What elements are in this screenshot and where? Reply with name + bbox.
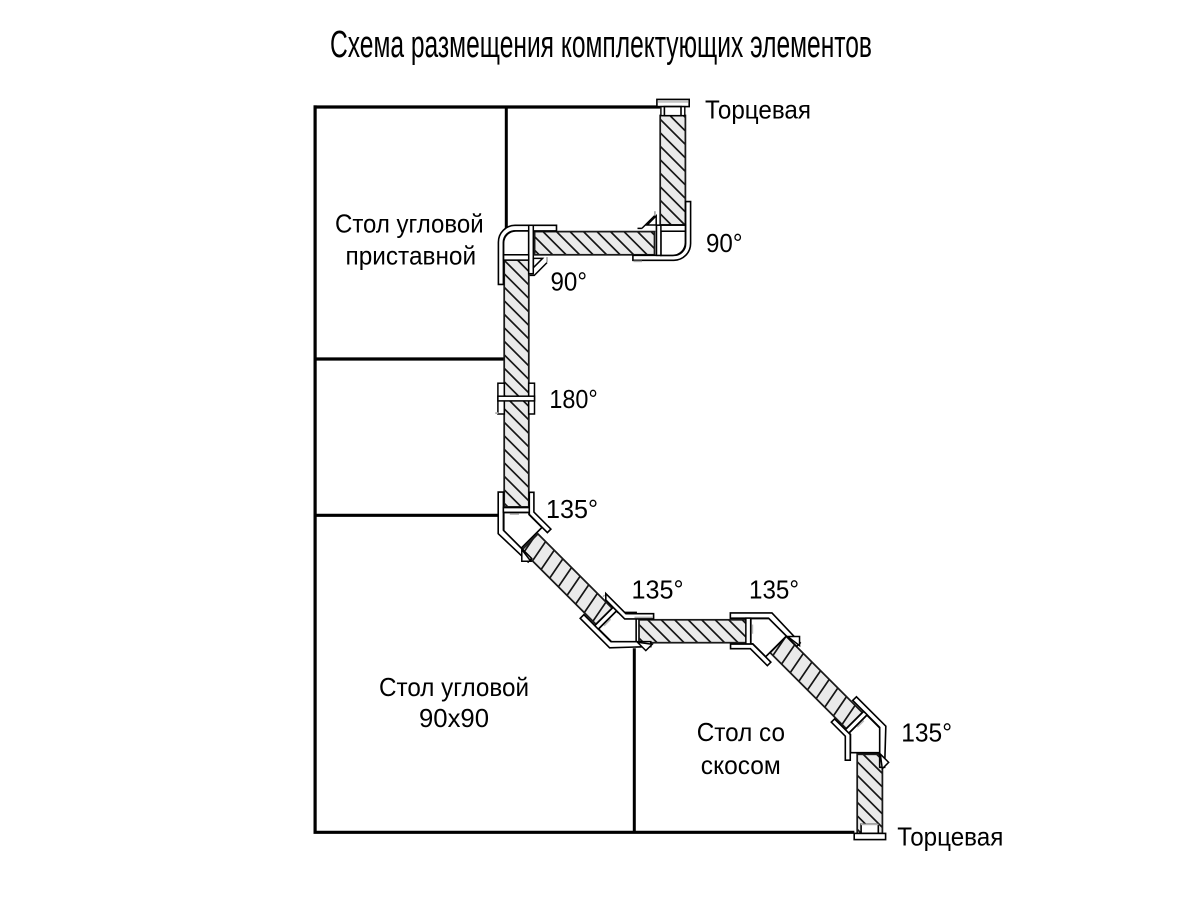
svg-text:90х90: 90х90 xyxy=(419,703,489,733)
svg-text:Стол со: Стол со xyxy=(697,717,785,747)
svg-text:135°: 135° xyxy=(901,717,952,747)
svg-text:скосом: скосом xyxy=(701,750,781,780)
svg-text:135°: 135° xyxy=(632,574,684,604)
svg-text:Стол угловой: Стол угловой xyxy=(335,209,484,239)
svg-text:Торцевая: Торцевая xyxy=(705,95,811,125)
svg-text:приставной: приставной xyxy=(346,241,477,271)
svg-text:90°: 90° xyxy=(551,267,588,297)
svg-text:180°: 180° xyxy=(549,384,597,414)
svg-text:90°: 90° xyxy=(706,228,743,258)
svg-text:135°: 135° xyxy=(546,494,598,524)
svg-text:Схема размещения комплектующих: Схема размещения комплектующих элементов xyxy=(330,24,872,66)
svg-text:135°: 135° xyxy=(749,574,799,604)
svg-text:Торцевая: Торцевая xyxy=(897,821,1003,851)
svg-text:Стол угловой: Стол угловой xyxy=(379,672,529,702)
